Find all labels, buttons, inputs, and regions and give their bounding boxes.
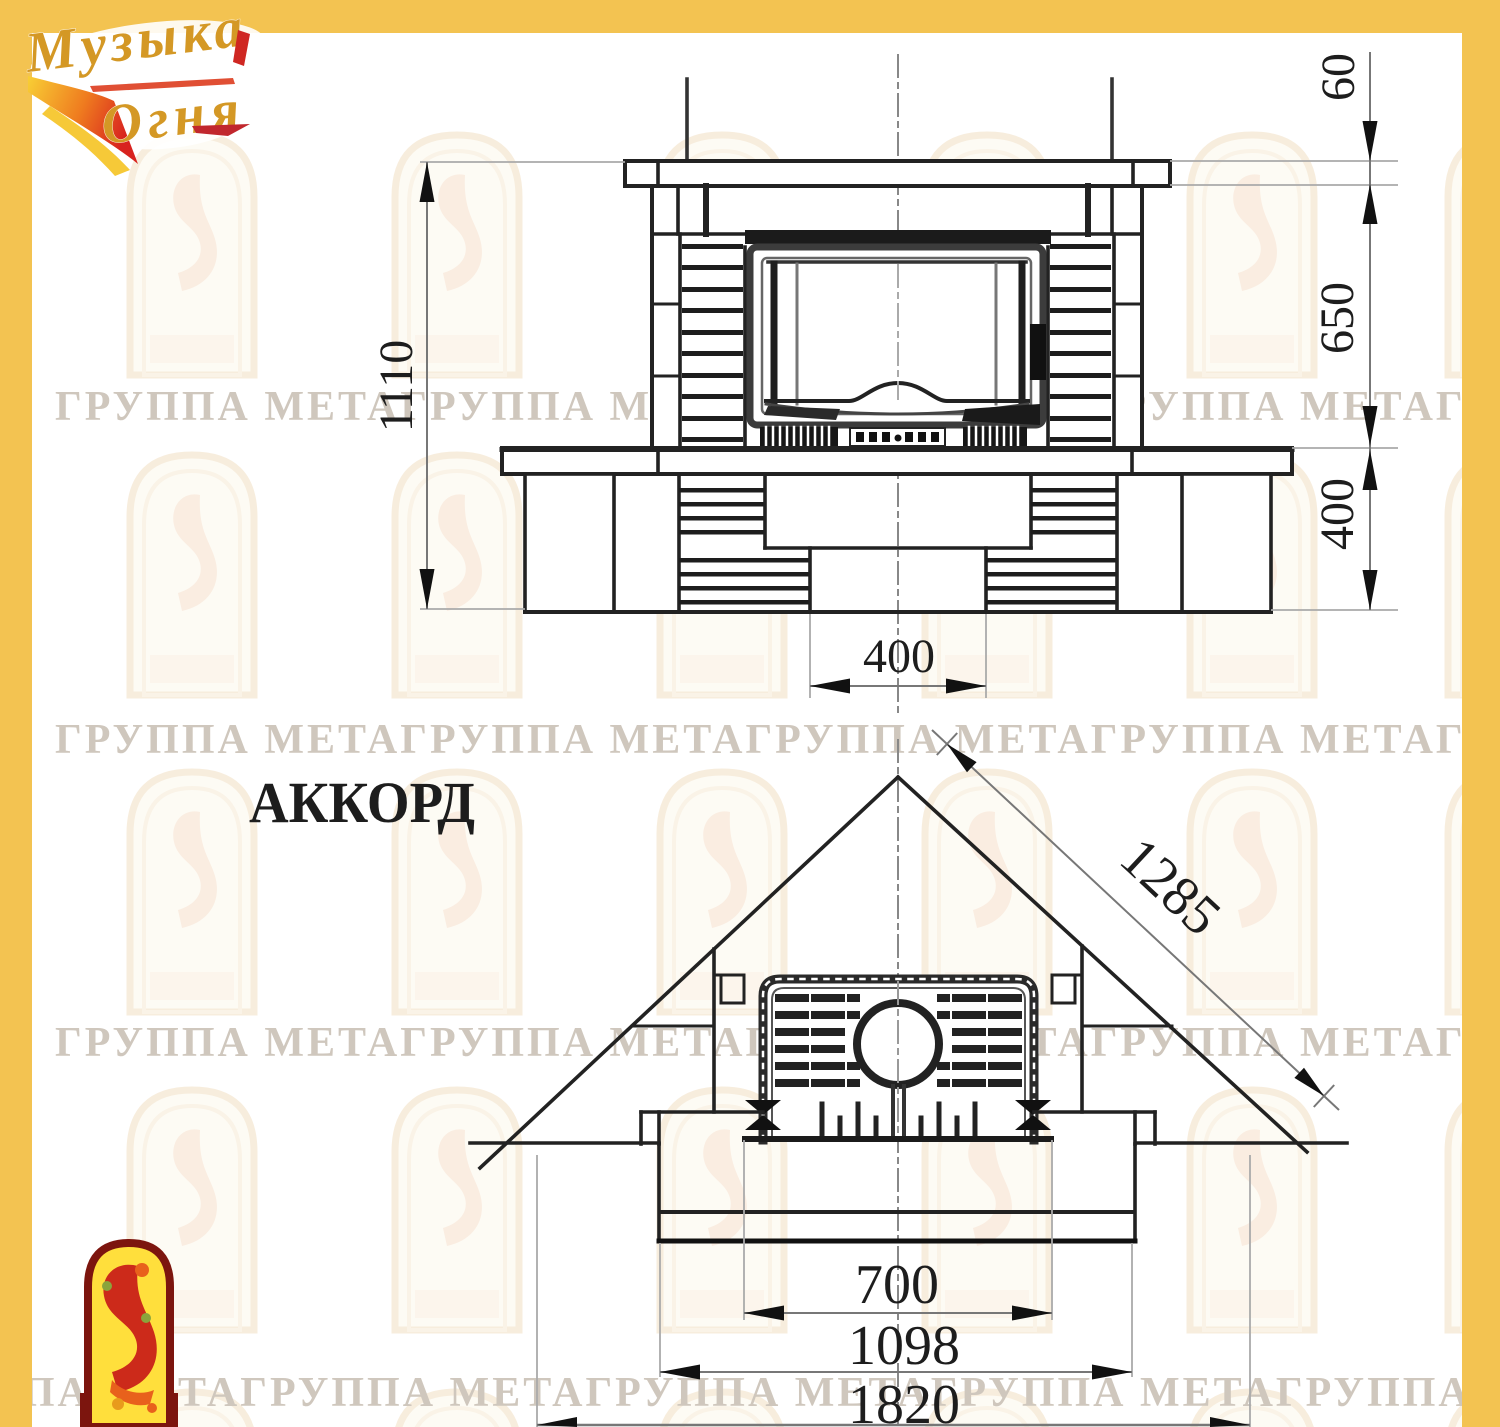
svg-text:700: 700 [855,1254,939,1316]
svg-text:1110: 1110 [370,340,423,432]
svg-text:400: 400 [1311,478,1364,550]
svg-text:60: 60 [1312,53,1365,101]
svg-text:400: 400 [863,630,935,683]
svg-text:650: 650 [1311,282,1364,354]
svg-text:АККОРД: АККОРД [249,770,475,835]
svg-text:1820: 1820 [848,1374,960,1427]
svg-text:ГРУППА МЕТАГРУППА МЕТАГРУППА М: ГРУППА МЕТАГРУППА МЕТАГРУППА МЕТАГРУППА … [0,1370,1472,1416]
svg-text:ГРУППА МЕТАГРУППА МЕТАГРУППА М: ГРУППА МЕТАГРУППА МЕТАГРУППА МЕТАГРУППА … [55,717,1500,763]
svg-text:1098: 1098 [848,1315,960,1377]
